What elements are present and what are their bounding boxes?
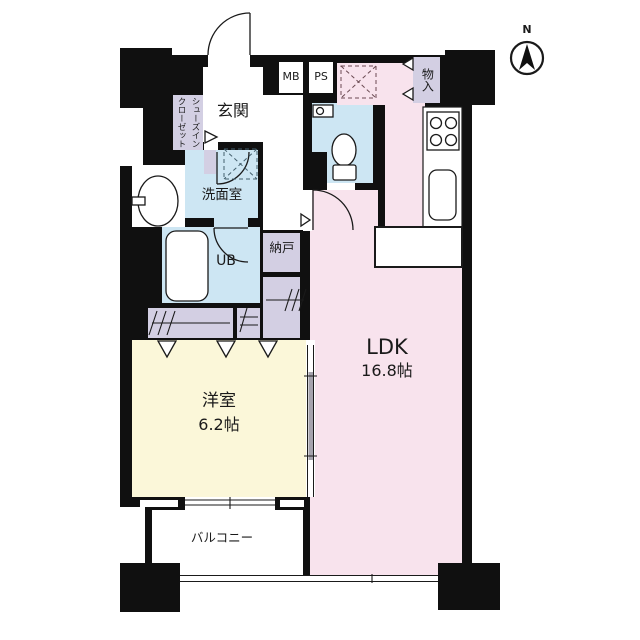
- toilet-icon: [313, 105, 356, 180]
- label-bedroom-size: 6.2帖: [179, 415, 259, 435]
- refrigerator-space-icon: [341, 66, 376, 98]
- label-shoes-closet: シューズインクローゼット: [174, 97, 202, 148]
- entrance-door-arc: [208, 13, 250, 55]
- entrance-step-icon: [205, 131, 217, 143]
- ldk-door-arc: [301, 190, 353, 230]
- label-monoire: 物入: [415, 59, 438, 101]
- label-bedroom-name: 洋室: [179, 391, 259, 413]
- floor-plan: N MB PS 物入 玄関 シューズインクローゼット 洗面室 UB 納戸 LDK…: [0, 0, 640, 640]
- balcony-railing: [180, 574, 438, 583]
- bedroom-window: [185, 497, 275, 509]
- label-ldk-size: 16.8帖: [345, 361, 429, 381]
- fixtures-overlay: [0, 0, 640, 640]
- label-mb: MB: [279, 62, 303, 93]
- stove-icon: [427, 112, 459, 150]
- sliding-door: [304, 345, 317, 497]
- label-ldk-name: LDK: [351, 335, 423, 359]
- kitchen-sink-icon: [429, 170, 456, 220]
- washbasin-icon: [132, 176, 178, 226]
- bathtub-icon: [166, 231, 208, 301]
- label-north: N: [518, 23, 536, 38]
- label-ps: PS: [309, 62, 333, 93]
- label-bath: UB: [206, 252, 246, 270]
- label-storage: 納戸: [262, 240, 302, 256]
- label-balcony: バルコニー: [177, 530, 267, 546]
- closet-door-marks: [158, 341, 277, 357]
- folding-door-icon: [403, 58, 413, 100]
- label-washroom: 洗面室: [186, 188, 258, 204]
- label-entrance: 玄関: [205, 101, 261, 122]
- north-arrow-icon: [511, 42, 543, 74]
